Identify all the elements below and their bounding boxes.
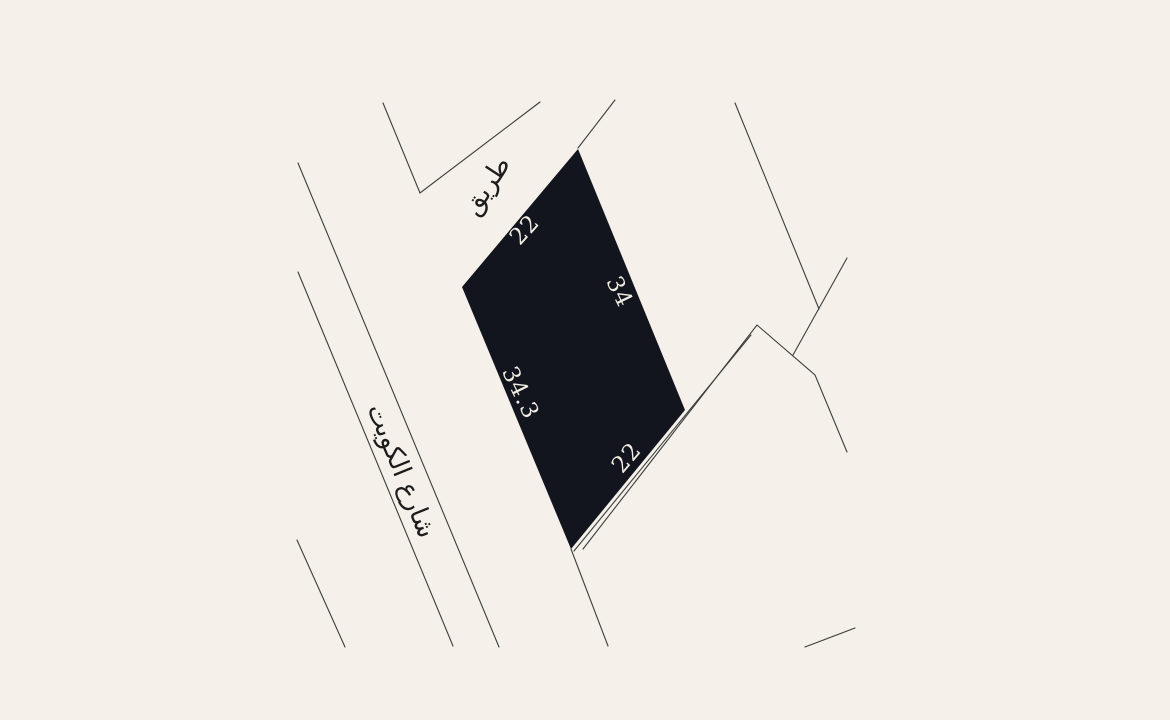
kuwait-street-west-edge (298, 272, 453, 646)
apex-road-line (578, 100, 615, 148)
corner-extension-line (571, 549, 608, 646)
road-corner-line (383, 102, 540, 193)
southwest-short-line (297, 540, 345, 647)
northeast-long-line (735, 103, 819, 309)
land-parcel-polygon[interactable] (462, 149, 685, 549)
parcel-map: 22 34 34.3 22 طريق شارع الكويت (0, 0, 1170, 720)
map-geometry (0, 0, 1170, 720)
bottom-right-short-line (805, 628, 855, 647)
kuwait-street-east-edge (298, 163, 499, 647)
northeast-cross-line (793, 258, 847, 355)
